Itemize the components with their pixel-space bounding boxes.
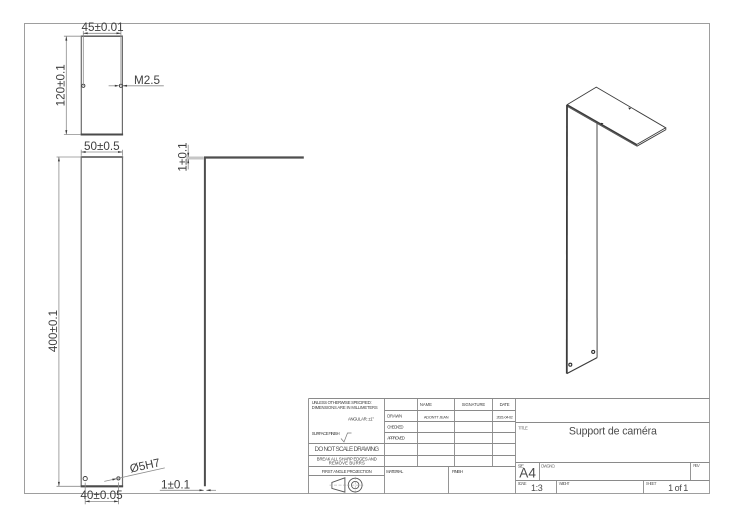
svg-text:400±0.1: 400±0.1 (47, 310, 60, 352)
svg-text:50±0.5: 50±0.5 (84, 140, 120, 153)
svg-text:1±0.1: 1±0.1 (177, 142, 190, 171)
svg-text:TITLE: TITLE (518, 425, 528, 430)
svg-text:2021-04-02: 2021-04-02 (497, 414, 513, 419)
svg-text:DRAWN: DRAWN (387, 414, 402, 419)
svg-text:REMOVE BURRS: REMOVE BURRS (329, 460, 365, 465)
svg-text:DWG NO.: DWG NO. (541, 463, 555, 468)
svg-text:CHECKED: CHECKED (387, 424, 403, 429)
svg-text:SURFACE FINISH: SURFACE FINISH (312, 431, 340, 436)
svg-text:Support de caméra: Support de caméra (569, 425, 657, 437)
svg-text:A4: A4 (519, 465, 536, 480)
svg-text:SCALE: SCALE (518, 481, 527, 486)
svg-text:45±0.01: 45±0.01 (82, 21, 124, 34)
svg-text:DIMENSIONS ARE IN MILLIMETERS: DIMENSIONS ARE IN MILLIMETERS (312, 405, 378, 410)
svg-text:FIRST ANGLE PROJECTION: FIRST ANGLE PROJECTION (322, 469, 372, 474)
svg-text:NAME: NAME (420, 402, 432, 407)
svg-text:REV: REV (693, 463, 700, 468)
svg-text:MATERIAL: MATERIAL (386, 469, 404, 474)
svg-text:M2.5: M2.5 (134, 74, 160, 87)
svg-text:1±0.1: 1±0.1 (161, 479, 190, 492)
svg-text:SIGNATURE: SIGNATURE (462, 402, 486, 407)
svg-text:1:3: 1:3 (531, 483, 543, 493)
svg-text:SHEET: SHEET (646, 481, 657, 486)
svg-text:FINISH: FINISH (452, 469, 463, 474)
svg-text:40±0.05: 40±0.05 (80, 489, 123, 502)
svg-text:DO NOT SCALE DRAWING: DO NOT SCALE DRAWING (315, 446, 380, 453)
svg-text:APPROVED: APPROVED (387, 435, 405, 440)
svg-text:WEIGHT: WEIGHT (559, 481, 570, 486)
svg-text:120±0.1: 120±0.1 (54, 64, 67, 106)
svg-text:ANGULAR: ±1°: ANGULAR: ±1° (348, 417, 374, 422)
svg-text:ADONTT JEAN: ADONTT JEAN (424, 414, 449, 419)
svg-text:1 of 1: 1 of 1 (668, 483, 688, 493)
svg-text:DATE: DATE (500, 402, 510, 407)
